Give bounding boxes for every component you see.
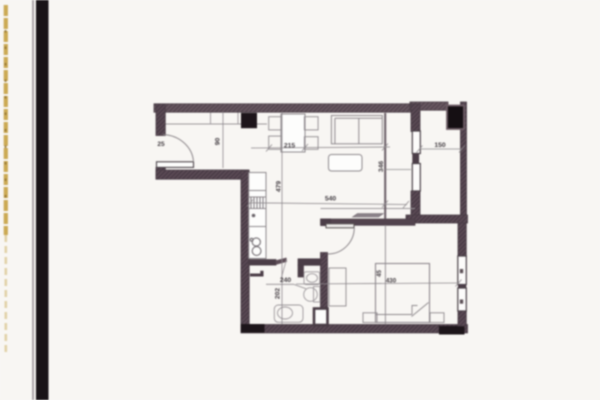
svg-text:346: 346 xyxy=(378,161,385,173)
svg-text:25: 25 xyxy=(157,141,165,148)
svg-text:150: 150 xyxy=(434,142,446,149)
svg-text:479: 479 xyxy=(276,181,283,193)
svg-text:430: 430 xyxy=(386,278,397,285)
svg-text:240: 240 xyxy=(280,277,292,284)
svg-text:540: 540 xyxy=(325,196,337,203)
svg-text:45: 45 xyxy=(376,270,383,277)
svg-text:202: 202 xyxy=(274,288,281,300)
svg-text:215: 215 xyxy=(284,143,296,150)
svg-text:90: 90 xyxy=(215,138,222,146)
